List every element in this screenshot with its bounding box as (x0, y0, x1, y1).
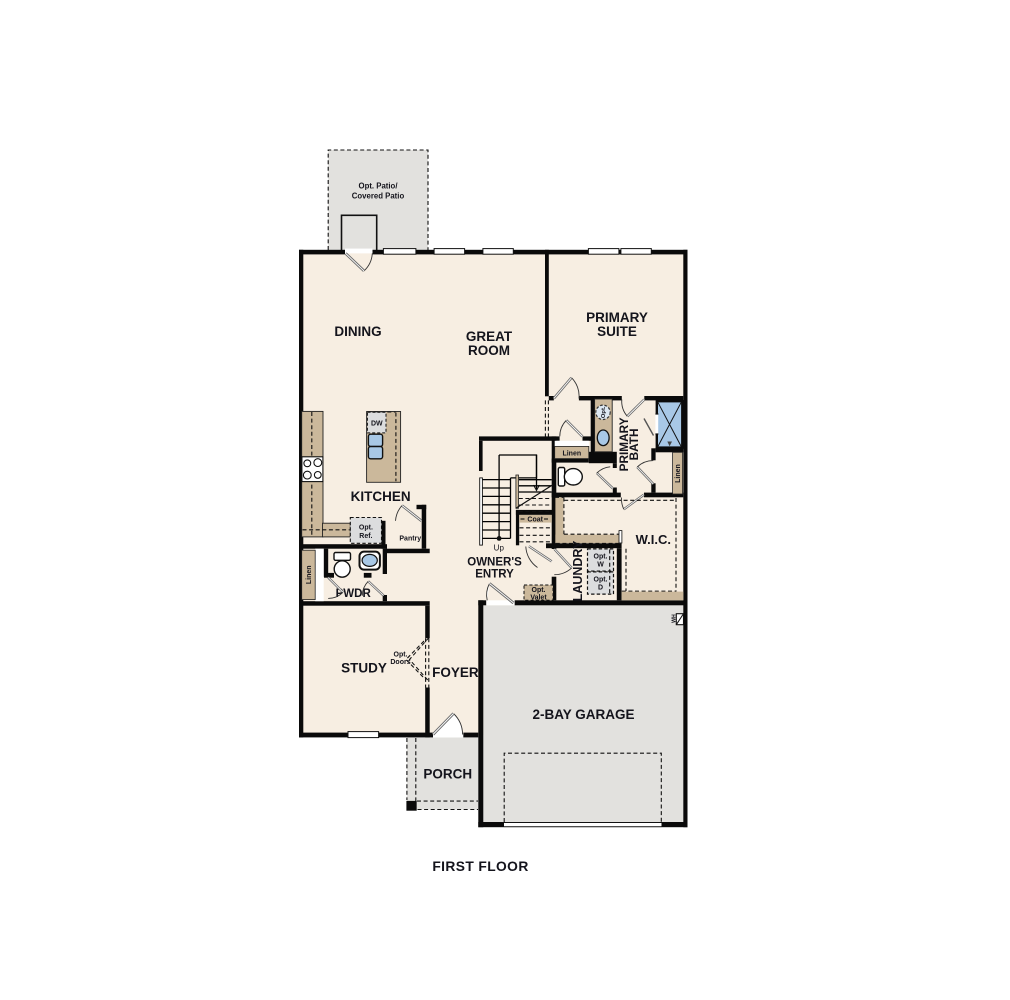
svg-text:W.I.C.: W.I.C. (636, 532, 671, 547)
svg-text:LAUNDRY: LAUNDRY (571, 540, 585, 601)
svg-text:Ref.: Ref. (359, 533, 372, 540)
svg-text:FIRST FLOOR: FIRST FLOOR (432, 859, 528, 874)
svg-text:Pantry: Pantry (399, 536, 421, 543)
svg-text:Opt. Patio/: Opt. Patio/ (359, 182, 399, 191)
svg-text:PORCH: PORCH (423, 767, 472, 782)
svg-text:DW: DW (371, 420, 383, 427)
svg-text:Opt.: Opt. (601, 406, 607, 418)
svg-text:BATH: BATH (627, 428, 641, 460)
svg-text:Covered Patio: Covered Patio (352, 192, 405, 201)
svg-text:STUDY: STUDY (341, 661, 387, 676)
svg-text:Opt.: Opt. (532, 587, 546, 594)
svg-text:Up: Up (494, 544, 505, 553)
svg-text:Opt.: Opt. (594, 576, 608, 583)
svg-text:Coat: Coat (527, 517, 543, 524)
svg-text:Opt.: Opt. (359, 524, 373, 531)
svg-text:ROOM: ROOM (468, 343, 510, 358)
svg-text:OWNER'S: OWNER'S (467, 557, 522, 569)
svg-text:GREAT: GREAT (466, 329, 513, 344)
svg-text:Doors: Doors (390, 659, 410, 666)
svg-text:KITCHEN: KITCHEN (351, 489, 411, 504)
svg-text:DINING: DINING (334, 324, 381, 339)
svg-text:PRIMARY: PRIMARY (586, 310, 648, 325)
svg-text:Linen: Linen (306, 565, 313, 584)
svg-text:Valet: Valet (530, 594, 547, 601)
svg-text:W: W (597, 561, 604, 568)
svg-text:WH: WH (671, 614, 677, 623)
svg-text:Opt.: Opt. (594, 553, 608, 560)
svg-text:Opt.: Opt. (394, 652, 408, 659)
svg-text:2-BAY GARAGE: 2-BAY GARAGE (532, 707, 634, 722)
svg-text:SUITE: SUITE (597, 324, 637, 339)
svg-text:D: D (598, 584, 603, 591)
svg-text:Linen: Linen (675, 464, 682, 483)
svg-text:FOYER: FOYER (432, 665, 479, 680)
svg-text:ENTRY: ENTRY (475, 569, 514, 581)
svg-text:Linen: Linen (562, 450, 581, 457)
